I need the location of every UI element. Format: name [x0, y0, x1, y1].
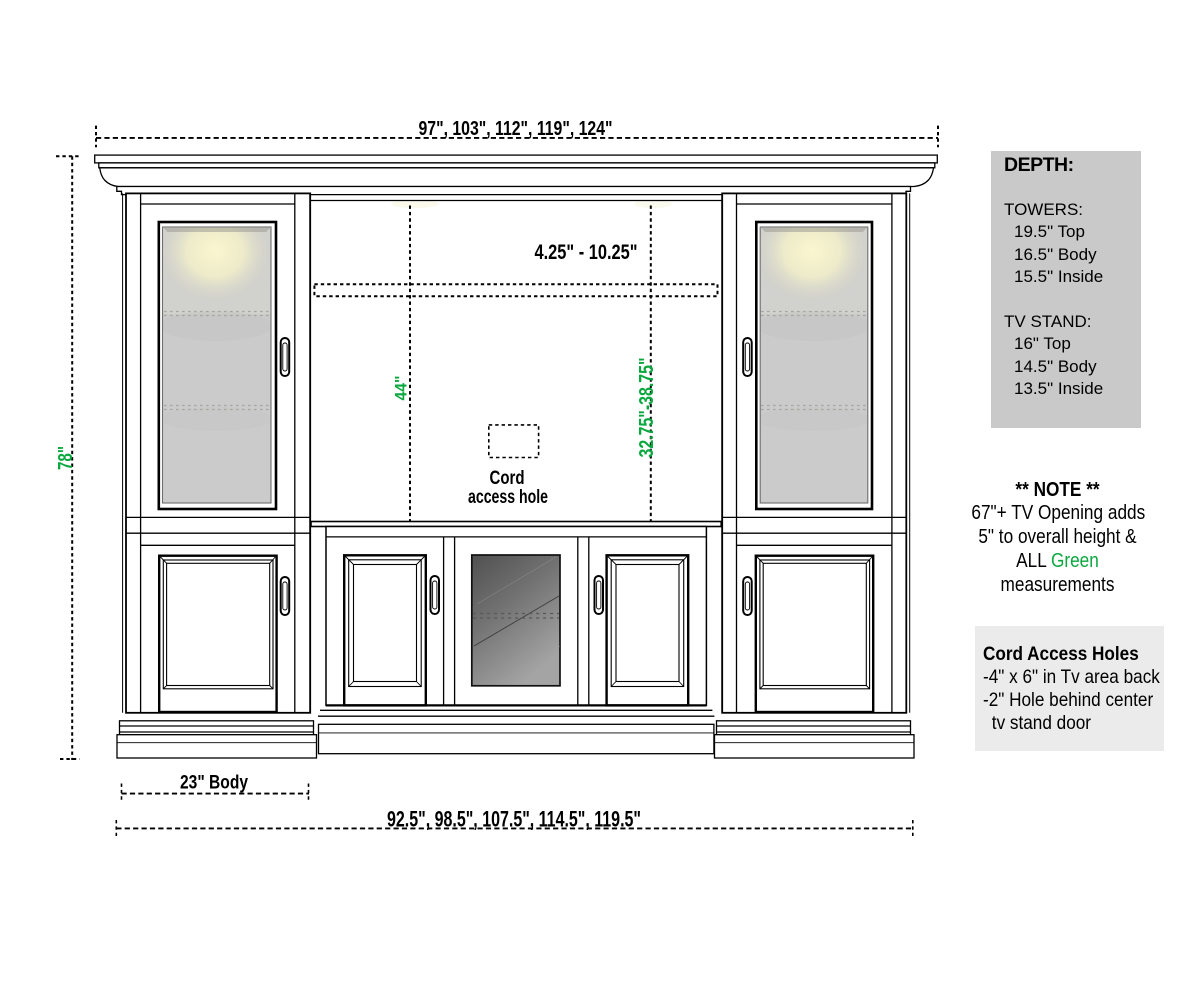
svg-text:4.25" - 10.25": 4.25" - 10.25" — [535, 241, 638, 264]
svg-text:access hole: access hole — [468, 487, 548, 508]
svg-text:97", 103", 112", 119", 124": 97", 103", 112", 119", 124" — [419, 117, 613, 140]
svg-text:32.75"-38.75": 32.75"-38.75" — [636, 358, 658, 458]
svg-text:Cord: Cord — [490, 468, 525, 489]
svg-text:92.5", 98.5", 107.5", 114.5",: 92.5", 98.5", 107.5", 114.5", 119.5" — [387, 807, 641, 832]
svg-text:78": 78" — [55, 446, 77, 470]
svg-text:23" Body: 23" Body — [180, 773, 248, 794]
svg-text:44": 44" — [392, 376, 411, 401]
